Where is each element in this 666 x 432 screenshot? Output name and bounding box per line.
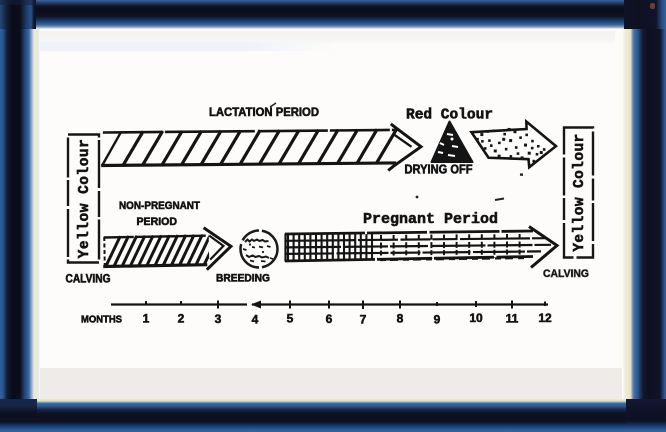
svg-text:9: 9 [434, 313, 441, 327]
svg-text:CALVING: CALVING [543, 268, 589, 280]
svg-text:PERIOD: PERIOD [137, 216, 178, 228]
svg-text:BREEDING: BREEDING [216, 273, 270, 285]
svg-text:6: 6 [326, 312, 333, 326]
svg-text:12: 12 [538, 311, 552, 325]
svg-text:11: 11 [506, 312, 519, 326]
svg-text:8: 8 [397, 312, 404, 326]
svg-text:LACTATION PERIOD: LACTATION PERIOD [209, 105, 319, 119]
svg-text:10: 10 [469, 311, 483, 325]
svg-text:7: 7 [360, 313, 367, 327]
svg-text:Yellow Colour: Yellow Colour [572, 133, 588, 251]
svg-text:CALVING: CALVING [66, 274, 111, 286]
svg-text:Yellow Colour: Yellow Colour [77, 139, 93, 259]
svg-text:3: 3 [215, 312, 222, 326]
svg-text:NON-PREGNANT: NON-PREGNANT [119, 200, 200, 212]
svg-text:MONTHS: MONTHS [81, 314, 122, 326]
svg-text:5: 5 [287, 312, 294, 326]
svg-text:Pregnant Period: Pregnant Period [363, 211, 498, 228]
svg-text:DRYING OFF: DRYING OFF [405, 163, 473, 177]
svg-text:4: 4 [252, 313, 259, 327]
svg-text:1: 1 [143, 312, 150, 326]
svg-text:2: 2 [178, 312, 185, 326]
